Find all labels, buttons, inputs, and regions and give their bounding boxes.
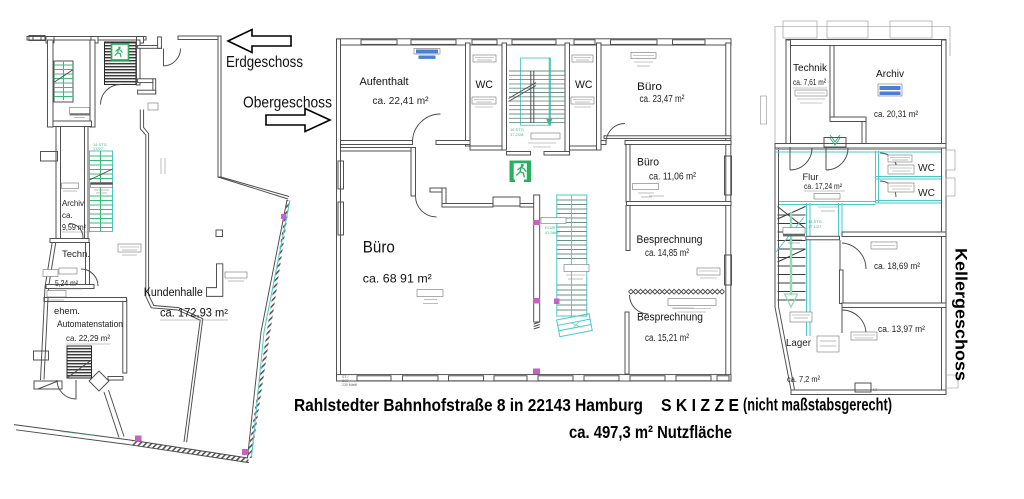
svg-text:ca. 13,97 m²: ca. 13,97 m²: [878, 324, 925, 335]
svg-text:WC: WC: [575, 79, 593, 91]
svg-text:Automatenstation: Automatenstation: [57, 319, 123, 330]
svg-text:ca. 22,29 m²: ca. 22,29 m²: [66, 333, 110, 343]
svg-text:Kellergeschoss: Kellergeschoss: [952, 248, 971, 381]
svg-text:Lager: Lager: [786, 338, 812, 349]
svg-text:Büro: Büro: [637, 157, 659, 169]
svg-text:ca. 68 91 m²: ca. 68 91 m²: [363, 272, 432, 286]
svg-text:Obergeschoss: Obergeschoss: [243, 95, 332, 112]
svg-text:(nicht maßstabsgerecht): (nicht maßstabsgerecht): [743, 395, 892, 415]
svg-text:ca. 7,61 m²: ca. 7,61 m²: [793, 77, 826, 87]
svg-text:ca. 20,31 m²: ca. 20,31 m²: [874, 109, 918, 120]
svg-text:WC: WC: [918, 163, 935, 174]
svg-text:ca. 172,93 m²: ca. 172,93 m²: [160, 308, 228, 320]
svg-text:Besprechnung: Besprechnung: [637, 312, 703, 324]
svg-text:Besprechnung: Besprechnung: [637, 234, 703, 246]
svg-text:WC: WC: [476, 79, 494, 91]
svg-text:Rahlstedter Bahnhofstraße 8 in: Rahlstedter Bahnhofstraße 8 in 22143 Ham…: [294, 395, 643, 415]
svg-text:ca. 15,21 m²: ca. 15,21 m²: [645, 333, 690, 344]
svg-text:ca. 18,69 m²: ca. 18,69 m²: [874, 261, 920, 272]
svg-text:ca. 497,3 m² Nutzfläche: ca. 497,3 m² Nutzfläche: [569, 422, 732, 442]
svg-text:Kundenhalle: Kundenhalle: [144, 287, 203, 299]
svg-text:ca. 23,47 m²: ca. 23,47 m²: [640, 94, 686, 105]
svg-text:Techn.: Techn.: [62, 249, 90, 259]
svg-text:Technik: Technik: [793, 63, 828, 74]
svg-text:ca. 7,2 m²: ca. 7,2 m²: [787, 374, 820, 384]
svg-text:ehem.: ehem.: [54, 306, 80, 317]
svg-text:Archiv: Archiv: [62, 198, 85, 208]
svg-text:17/27: 17/27: [93, 146, 104, 151]
svg-text:ca.: ca.: [62, 211, 73, 220]
svg-text:41,98m²: 41,98m²: [545, 230, 560, 235]
svg-text:ca. 22,41 m²: ca. 22,41 m²: [373, 96, 430, 107]
svg-text:17,2/28: 17,2/28: [510, 132, 524, 137]
svg-text:Büro: Büro: [637, 81, 662, 93]
svg-text:ca. 14,85 m²: ca. 14,85 m²: [645, 248, 690, 259]
svg-text:Archiv: Archiv: [876, 68, 905, 80]
svg-text:5,24 m²: 5,24 m²: [55, 279, 78, 288]
svg-text:ca. 17,24 m²: ca. 17,24 m²: [804, 182, 842, 191]
svg-text:S K I Z Z E: S K I Z Z E: [661, 395, 739, 415]
svg-text:ca. 11,06 m²: ca. 11,06 m²: [649, 172, 697, 183]
svg-text:Erdgeschoss: Erdgeschoss: [226, 54, 303, 71]
svg-text:WC: WC: [918, 188, 935, 199]
svg-text:17,1/27: 17,1/27: [808, 224, 822, 229]
svg-text:Aufenthalt: Aufenthalt: [360, 76, 409, 88]
svg-text:Büro: Büro: [363, 239, 395, 257]
svg-text:230 Mietfl: 230 Mietfl: [342, 383, 357, 387]
